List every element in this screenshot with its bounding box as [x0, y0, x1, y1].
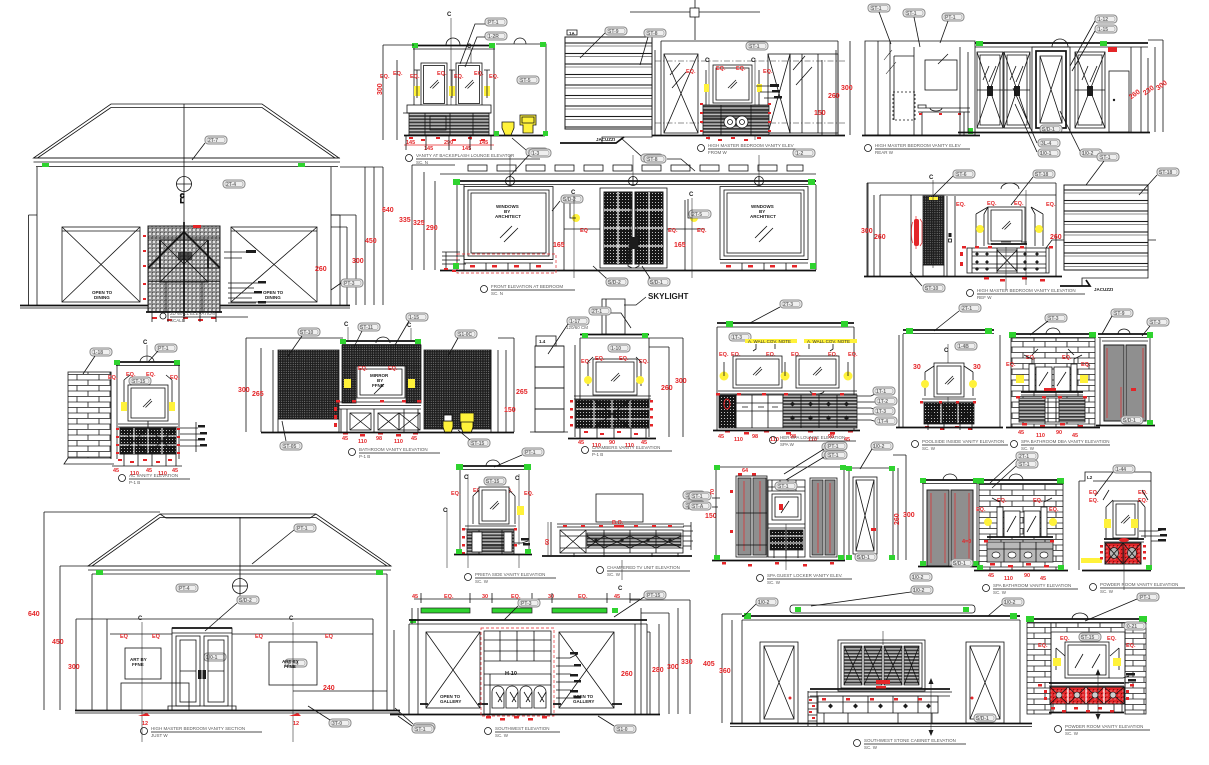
- svg-text:ST-5: ST-5: [520, 78, 531, 84]
- svg-text:EQ.: EQ.: [1081, 362, 1091, 368]
- svg-text:ST-1: ST-1: [415, 727, 426, 733]
- svg-text:ST-1: ST-1: [871, 6, 882, 12]
- svg-text:C: C: [289, 616, 294, 622]
- svg-text:70: 70: [710, 489, 716, 495]
- svg-text:SC. W: SC. W: [1100, 589, 1114, 594]
- svg-text:C: C: [344, 322, 349, 328]
- svg-text:2T-1: 2T-1: [592, 309, 602, 315]
- svg-text:EQ: EQ: [255, 634, 264, 640]
- svg-text:325: 325: [413, 220, 425, 227]
- svg-text:98: 98: [752, 434, 758, 440]
- svg-text:ST-1: ST-1: [749, 44, 760, 50]
- svg-text:ST-18: ST-18: [1035, 172, 1049, 178]
- svg-text:SPA BATHROOM DBA VANITY ELEVAT: SPA BATHROOM DBA VANITY ELEVATION: [1021, 439, 1110, 444]
- svg-text:EQ.: EQ.: [170, 375, 180, 381]
- svg-text:L2: L2: [1087, 475, 1093, 480]
- svg-text:45: 45: [614, 594, 620, 600]
- svg-text:L: L: [180, 199, 184, 205]
- svg-text:4=0: 4=0: [962, 539, 971, 545]
- svg-text:ST-15: ST-15: [471, 441, 485, 447]
- svg-text:0-21: 0-21: [1127, 624, 1137, 630]
- svg-text:EQ.: EQ.: [1062, 355, 1072, 361]
- svg-text:PRIETA SIDE VANITY ELEVATION: PRIETA SIDE VANITY ELEVATION: [475, 572, 545, 577]
- svg-text:EQ.: EQ.: [987, 201, 997, 207]
- svg-text:GALLERY: GALLERY: [573, 699, 594, 704]
- svg-text:45: 45: [578, 440, 584, 446]
- svg-text:45: 45: [412, 594, 418, 600]
- svg-text:2D WALL ELEVATION: 2D WALL ELEVATION: [170, 311, 215, 316]
- svg-text:1/0-2: 1/0-2: [758, 600, 770, 606]
- svg-text:12: 12: [142, 721, 148, 727]
- svg-text:145: 145: [479, 140, 488, 146]
- svg-text:ST-9: ST-9: [1114, 311, 1125, 317]
- svg-text:45: 45: [718, 434, 724, 440]
- svg-text:EQ.: EQ.: [716, 66, 726, 72]
- svg-text:EQ.: EQ.: [1033, 498, 1043, 504]
- svg-text:1T-2: 1T-2: [878, 399, 888, 405]
- svg-text:HIGH MASTER BEDROOM VANITY ELE: HIGH MASTER BEDROOM VANITY ELEV: [708, 143, 794, 148]
- svg-text:EQ.: EQ.: [1014, 201, 1024, 207]
- svg-text:PT-3: PT-3: [521, 601, 532, 607]
- svg-text:ST-10: ST-10: [925, 286, 939, 292]
- svg-text:PT-1: PT-1: [158, 346, 169, 352]
- svg-text:CHAMFERED TV UNIT ELEVATION: CHAMFERED TV UNIT ELEVATION: [607, 565, 680, 570]
- svg-text:S/D-1: S/D-1: [976, 716, 989, 722]
- svg-text:150: 150: [504, 407, 516, 414]
- svg-text:HIGH MASTER BEDROOM VANITY ELE: HIGH MASTER BEDROOM VANITY ELEVATION: [977, 288, 1076, 293]
- svg-text:405: 405: [703, 661, 715, 668]
- svg-text:EQ: EQ: [325, 634, 334, 640]
- svg-text:ST-6: ST-6: [956, 172, 967, 178]
- svg-text:DINING: DINING: [265, 295, 281, 300]
- svg-text:C: C: [447, 12, 452, 18]
- svg-text:C: C: [929, 175, 934, 181]
- svg-text:300: 300: [861, 228, 873, 235]
- svg-text:1-2: 1-2: [796, 151, 803, 157]
- svg-text:POOLSIDE INSIDE VANITY ELEVATI: POOLSIDE INSIDE VANITY ELEVATION: [922, 439, 1004, 444]
- svg-text:450: 450: [52, 639, 64, 646]
- svg-text:EQ.: EQ.: [146, 372, 156, 378]
- svg-text:SPA W: SPA W: [780, 442, 795, 447]
- svg-text:EQ.: EQ.: [393, 71, 403, 77]
- svg-text:SC. W: SC. W: [1021, 446, 1035, 451]
- svg-text:SOUTHWEST ELEVATION: SOUTHWEST ELEVATION: [495, 726, 550, 731]
- svg-text:EQ.: EQ.: [763, 69, 773, 75]
- svg-text:EQ.: EQ.: [719, 352, 729, 358]
- svg-text:EQ.: EQ.: [108, 375, 118, 381]
- svg-text:2T-1: 2T-1: [962, 306, 972, 312]
- svg-text:EQ.: EQ.: [444, 594, 454, 600]
- svg-text:1A: 1A: [569, 31, 576, 36]
- svg-text:JUST W: JUST W: [151, 733, 168, 738]
- svg-text:ST-8: ST-8: [647, 31, 658, 37]
- svg-text:300: 300: [675, 378, 687, 385]
- svg-text:1T-3: 1T-3: [876, 409, 886, 415]
- svg-text:300: 300: [377, 83, 384, 95]
- svg-text:EQ.: EQ.: [1060, 636, 1070, 642]
- svg-text:ST-8: ST-8: [647, 157, 658, 163]
- svg-text:45: 45: [411, 436, 417, 442]
- svg-text:1T-1: 1T-1: [876, 389, 886, 395]
- svg-text:1-4B: 1-4B: [958, 344, 969, 350]
- svg-text:45: 45: [1018, 430, 1024, 436]
- svg-text:EQ.: EQ.: [848, 352, 858, 358]
- svg-text:EQ.: EQ.: [595, 356, 605, 362]
- svg-text:POWDER ROOM VANITY ELEVATION: POWDER ROOM VANITY ELEVATION: [1065, 724, 1143, 729]
- svg-text:ST-3: ST-3: [1048, 316, 1059, 322]
- svg-text:2T-7: 2T-7: [208, 138, 218, 144]
- svg-text:1T-3: 1T-3: [732, 335, 742, 341]
- svg-text:S/D-1: S/D-1: [1123, 418, 1136, 424]
- svg-text:145: 145: [424, 146, 433, 152]
- svg-text:EQ.: EQ.: [358, 366, 368, 372]
- svg-text:1-15: 1-15: [409, 315, 419, 321]
- svg-text:ST-1: ST-1: [828, 453, 839, 459]
- svg-text:1/0-1: 1/0-1: [1040, 151, 1052, 157]
- svg-text:90: 90: [1024, 573, 1030, 579]
- svg-text:REF W: REF W: [977, 295, 992, 300]
- svg-text:EQ.: EQ.: [668, 228, 678, 234]
- svg-text:ST-15: ST-15: [132, 379, 146, 385]
- svg-text:ST-1: ST-1: [1019, 462, 1030, 468]
- svg-text:2T-3: 2T-3: [783, 302, 793, 308]
- svg-text:ST-1: ST-1: [906, 11, 917, 17]
- svg-text:SC. W: SC. W: [495, 733, 509, 738]
- svg-text:ST-11: ST-11: [360, 325, 373, 331]
- svg-text:450: 450: [365, 238, 377, 245]
- svg-text:ST-A: ST-A: [692, 504, 704, 510]
- svg-text:145: 145: [406, 140, 415, 146]
- svg-text:FFNE: FFNE: [132, 662, 144, 667]
- svg-text:FRONT ELEVATION AT BEDROOM: FRONT ELEVATION AT BEDROOM: [491, 284, 563, 289]
- svg-text:C: C: [618, 586, 623, 592]
- svg-text:165: 165: [674, 242, 686, 249]
- svg-text:1-44: 1-44: [1116, 467, 1126, 473]
- svg-text:S/D-2: S/D-2: [608, 280, 621, 286]
- svg-text:SCALE: SCALE: [170, 318, 185, 323]
- svg-text:EQ.: EQ.: [1107, 636, 1117, 642]
- svg-text:PT-1: PT-1: [828, 444, 839, 450]
- svg-text:300: 300: [841, 85, 853, 92]
- svg-text:PT-4: PT-4: [179, 586, 190, 592]
- svg-text:C: C: [751, 58, 756, 64]
- svg-text:260: 260: [315, 266, 327, 273]
- svg-text:EQ.: EQ.: [410, 74, 420, 80]
- svg-text:A. WALL COV. NOTE: A. WALL COV. NOTE: [807, 339, 850, 344]
- svg-text:SKYLIGHT: SKYLIGHT: [648, 292, 689, 301]
- svg-text:EQ.: EQ.: [736, 66, 746, 72]
- svg-text:1-2R: 1-2R: [488, 34, 499, 40]
- svg-text:ST-05: ST-05: [283, 444, 297, 450]
- svg-text:45: 45: [113, 468, 119, 474]
- svg-text:EQ.: EQ.: [1126, 643, 1136, 649]
- svg-text:SPA BATHROOM VANITY ELEVATION: SPA BATHROOM VANITY ELEVATION: [993, 583, 1071, 588]
- svg-text:P-1 B: P-1 B: [592, 452, 603, 457]
- svg-text:265: 265: [516, 389, 528, 396]
- svg-text:110: 110: [358, 439, 367, 445]
- svg-text:640: 640: [28, 611, 40, 618]
- svg-text:VANITY AT BACKSPLASH LOUNGE EL: VANITY AT BACKSPLASH LOUNGE ELEVATOR: [416, 153, 515, 158]
- svg-text:1-12: 1-12: [1098, 17, 1108, 23]
- svg-text:1/0-2: 1/0-2: [913, 588, 925, 594]
- svg-text:260: 260: [828, 93, 840, 100]
- svg-text:B.O.: B.O.: [612, 520, 624, 526]
- svg-text:CHAMBERS VANITY ELEVATION: CHAMBERS VANITY ELEVATION: [592, 445, 660, 450]
- svg-text:SC. W: SC. W: [767, 580, 781, 585]
- svg-text:EQ.: EQ.: [581, 359, 591, 365]
- svg-text:AC VANITY ELEVATION: AC VANITY ELEVATION: [129, 473, 178, 478]
- svg-text:260: 260: [894, 513, 901, 525]
- svg-text:1.4: 1.4: [539, 339, 546, 344]
- svg-text:360: 360: [719, 668, 731, 675]
- svg-text:SC. N: SC. N: [491, 291, 503, 296]
- svg-text:2T-1: 2T-1: [1019, 454, 1029, 460]
- svg-text:EQ.: EQ.: [1089, 498, 1099, 504]
- svg-text:ST-3: ST-3: [1150, 320, 1161, 326]
- svg-text:SOUTHWEST STONE CABINET ELEVAT: SOUTHWEST STONE CABINET ELEVATION: [864, 738, 956, 743]
- svg-text:1-3: 1-3: [532, 151, 539, 157]
- svg-text:HIGH MASTER BEDROOM VANITY ELE: HIGH MASTER BEDROOM VANITY ELEV: [875, 143, 961, 148]
- svg-text:12: 12: [293, 721, 299, 727]
- svg-text:EQ.: EQ.: [489, 74, 499, 80]
- svg-text:EQ.: EQ.: [1089, 490, 1099, 496]
- svg-text:150: 150: [705, 513, 717, 520]
- svg-text:SC. W: SC. W: [1065, 731, 1079, 736]
- svg-text:ST-15: ST-15: [1081, 635, 1095, 641]
- svg-text:150: 150: [814, 110, 826, 117]
- svg-text:EQ.: EQ.: [956, 202, 966, 208]
- svg-text:ST-1: ST-1: [692, 494, 703, 500]
- svg-text:S/D-1: S/D-1: [953, 561, 966, 567]
- svg-text:HER SPA LOUNGE ELEVATION: HER SPA LOUNGE ELEVATION: [780, 435, 845, 440]
- svg-text:PT-1: PT-1: [945, 15, 956, 21]
- svg-text:EQ.: EQ.: [454, 74, 464, 80]
- svg-text:300: 300: [352, 258, 364, 265]
- svg-text:JACUZZI: JACUZZI: [1094, 287, 1113, 292]
- svg-text:FFNE: FFNE: [284, 664, 296, 669]
- svg-text:S/D-2: S/D-2: [239, 598, 252, 604]
- svg-text:64: 64: [742, 468, 749, 474]
- svg-text:PT-1: PT-1: [488, 20, 499, 26]
- svg-text:POWDER ROOM VANITY ELEVATION: POWDER ROOM VANITY ELEVATION: [1100, 582, 1178, 587]
- svg-text:EQ.: EQ.: [697, 228, 707, 234]
- svg-text:ST-15: ST-15: [486, 479, 500, 485]
- svg-text:C: C: [464, 475, 469, 481]
- svg-text:EQ: EQ: [580, 228, 589, 234]
- svg-text:C: C: [944, 348, 949, 354]
- svg-text:EQ.: EQ.: [1046, 202, 1056, 208]
- svg-text:EQ.: EQ.: [437, 71, 447, 77]
- svg-text:EQ.: EQ.: [451, 491, 461, 497]
- svg-text:110: 110: [394, 439, 403, 445]
- svg-text:1-15: 1-15: [1098, 27, 1108, 33]
- svg-text:HIGH MASTER BEDROOM VANITY SEC: HIGH MASTER BEDROOM VANITY SECTION: [151, 726, 245, 731]
- svg-text:PT-1: PT-1: [297, 526, 308, 532]
- svg-text:45: 45: [1040, 576, 1046, 582]
- svg-text:640: 640: [382, 207, 394, 214]
- svg-text:1/0-2: 1/0-2: [912, 575, 924, 581]
- svg-text:2T-5: 2T-5: [692, 212, 702, 218]
- svg-text:SC. W: SC. W: [922, 446, 936, 451]
- svg-text:240: 240: [323, 685, 335, 692]
- svg-text:290: 290: [444, 140, 453, 146]
- svg-text:330: 330: [681, 659, 693, 666]
- svg-text:98: 98: [376, 436, 382, 442]
- svg-text:30: 30: [913, 364, 921, 371]
- svg-text:90: 90: [1056, 430, 1062, 436]
- svg-text:EQ.: EQ.: [1049, 507, 1059, 513]
- svg-text:3L-4: 3L-4: [1041, 141, 1052, 147]
- svg-text:SC. W: SC. W: [993, 590, 1007, 595]
- svg-text:1T-4: 1T-4: [878, 419, 888, 425]
- svg-text:260: 260: [621, 671, 633, 678]
- svg-text:300: 300: [238, 387, 250, 394]
- svg-text:SC. W: SC. W: [475, 579, 489, 584]
- svg-text:S1-0: S1-0: [617, 727, 628, 733]
- svg-text:ARCHITECT: ARCHITECT: [750, 214, 776, 219]
- svg-text:EQ.: EQ.: [1006, 362, 1016, 368]
- svg-text:EQ.: EQ.: [474, 71, 484, 77]
- svg-text:110: 110: [770, 437, 779, 443]
- svg-text:ST-18: ST-18: [1159, 170, 1173, 176]
- svg-text:60: 60: [545, 539, 551, 545]
- svg-text:3T-0: 3T-0: [332, 721, 342, 727]
- svg-text:P-1 B: P-1 B: [129, 480, 140, 485]
- svg-text:45: 45: [342, 436, 348, 442]
- svg-text:EQ.: EQ.: [388, 366, 398, 372]
- svg-text:EQ.: EQ.: [1038, 643, 1048, 649]
- svg-text:JACUZZI: JACUZZI: [596, 137, 615, 142]
- svg-text:BATHROOM VANITY ELEVATION: BATHROOM VANITY ELEVATION: [359, 447, 428, 452]
- svg-text:ST-1: ST-1: [1100, 155, 1111, 161]
- svg-text:REAR W: REAR W: [875, 150, 894, 155]
- svg-text:30: 30: [482, 594, 488, 600]
- svg-text:300: 300: [667, 664, 679, 671]
- svg-text:C: C: [138, 616, 143, 622]
- svg-text:PT-15: PT-15: [647, 593, 661, 599]
- svg-text:EQ.: EQ.: [686, 69, 696, 75]
- svg-text:300: 300: [903, 512, 915, 519]
- svg-text:PT-3: PT-3: [344, 281, 355, 287]
- svg-text:290: 290: [426, 225, 438, 232]
- svg-text:C: C: [443, 508, 448, 514]
- svg-text:ST-1: ST-1: [778, 484, 789, 490]
- svg-text:SC. W: SC. W: [607, 572, 621, 577]
- svg-text:165: 165: [553, 242, 565, 249]
- svg-text:SC. W: SC. W: [864, 745, 878, 750]
- svg-text:335: 335: [399, 217, 411, 224]
- svg-text:EQ: EQ: [120, 634, 129, 640]
- svg-text:EQ.: EQ.: [524, 491, 534, 497]
- svg-text:S1-0C: S1-0C: [458, 332, 473, 338]
- svg-text:ST-9: ST-9: [608, 29, 619, 35]
- svg-text:30: 30: [973, 364, 981, 371]
- svg-text:280: 280: [652, 667, 664, 674]
- svg-text:265: 265: [252, 391, 264, 398]
- svg-text:GALLERY: GALLERY: [440, 699, 461, 704]
- svg-text:H-10: H-10: [505, 671, 517, 677]
- svg-text:1/0-2: 1/0-2: [1082, 151, 1094, 157]
- svg-text:EQ.: EQ.: [619, 356, 629, 362]
- svg-text:1-17: 1-17: [570, 319, 580, 325]
- svg-text:120/60 CM: 120/60 CM: [566, 325, 588, 330]
- svg-text:A. WALL COV. NOTE: A. WALL COV. NOTE: [748, 339, 791, 344]
- svg-text:110: 110: [734, 437, 743, 443]
- svg-text:30: 30: [548, 594, 554, 600]
- svg-text:45: 45: [988, 573, 994, 579]
- svg-text:FROM W: FROM W: [708, 150, 727, 155]
- svg-text:EQ.: EQ.: [578, 594, 588, 600]
- svg-text:C: C: [515, 476, 520, 482]
- svg-text:P-1 B: P-1 B: [359, 454, 370, 459]
- svg-text:EQ.: EQ.: [1026, 355, 1036, 361]
- svg-text:1-10: 1-10: [611, 346, 621, 352]
- svg-text:C: C: [143, 340, 148, 346]
- svg-text:PT-1: PT-1: [1140, 595, 1151, 601]
- svg-text:EQ.: EQ.: [976, 507, 986, 513]
- svg-text:1/0-2: 1/0-2: [1004, 600, 1016, 606]
- svg-text:260: 260: [874, 234, 886, 241]
- svg-text:260: 260: [661, 385, 673, 392]
- svg-text:2T-4: 2T-4: [226, 182, 236, 188]
- svg-text:110: 110: [1004, 576, 1013, 582]
- svg-text:ARCHITECT: ARCHITECT: [495, 214, 521, 219]
- svg-text:1/0-2: 1/0-2: [873, 444, 885, 450]
- svg-text:DINING: DINING: [94, 295, 110, 300]
- svg-text:SC. N: SC. N: [416, 160, 428, 165]
- svg-text:EQ.: EQ.: [380, 74, 390, 80]
- svg-text:C: C: [689, 192, 694, 198]
- svg-text:S/D-1: S/D-1: [650, 280, 663, 286]
- svg-text:SPA GUEST LOCKER VANITY ELEV.: SPA GUEST LOCKER VANITY ELEV.: [767, 573, 843, 578]
- svg-text:EQ: EQ: [152, 634, 161, 640]
- svg-text:300: 300: [68, 664, 80, 671]
- svg-text:PT-1: PT-1: [525, 450, 536, 456]
- svg-text:ST-10: ST-10: [300, 330, 314, 336]
- svg-text:1-18: 1-18: [93, 350, 103, 356]
- svg-text:C: C: [705, 58, 710, 64]
- svg-text:S/D-1: S/D-1: [857, 555, 870, 561]
